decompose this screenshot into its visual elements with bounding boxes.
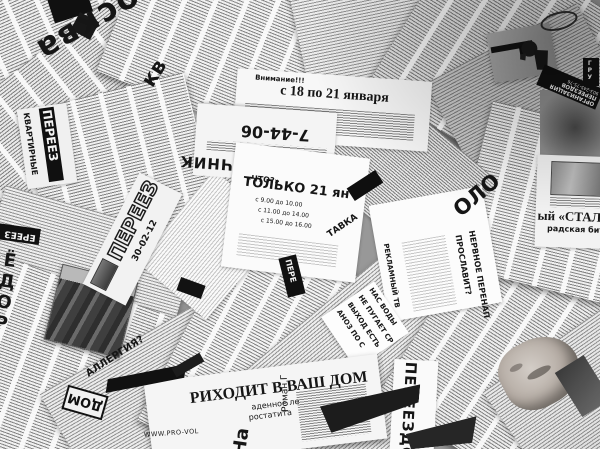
roman-byline: Роман Г xyxy=(281,374,292,412)
pere-fragment-label: ПЕРЕ xyxy=(283,259,299,294)
gru-box: ГРУ xyxy=(583,58,599,86)
dom-label: ДОМ xyxy=(66,389,104,413)
gru-label: ГРУ xyxy=(586,60,592,84)
phone-number: 7-44-06 xyxy=(240,122,310,144)
stalingrad-subhead: радская бит xyxy=(547,225,600,235)
ereez-label: ЕРЕЕЗ xyxy=(4,228,36,242)
article-photo xyxy=(550,161,600,197)
schedule-line: с 15.00 до 16.00 xyxy=(260,218,312,230)
stalingrad-clipping: ый «СТАЛ радская бит xyxy=(534,155,600,250)
newspaper-collage-photo: Внимание!!! с 18 по 21 января ПОЗВОНОЧНИ… xyxy=(0,0,600,449)
fine-print-lines xyxy=(402,235,457,312)
truck-photo xyxy=(90,258,119,291)
moving-label: ПЕРЕЕЗ xyxy=(39,107,64,182)
bright-article-clipping: РЕКЛАМНЫЙ ТВ ПРОСЛАВИТ? НЕРВНОЕ ПЕРЕНАП xyxy=(369,186,503,322)
face-shadow-detail xyxy=(526,363,553,382)
face-shadow-detail xyxy=(509,362,524,374)
photo-caption-lines xyxy=(550,197,600,209)
na-quote-headline: «На xyxy=(229,427,253,449)
stalingrad-headline: ый «СТАЛ xyxy=(537,209,600,225)
date-range-headline: с 18 по 21 января xyxy=(280,84,390,106)
